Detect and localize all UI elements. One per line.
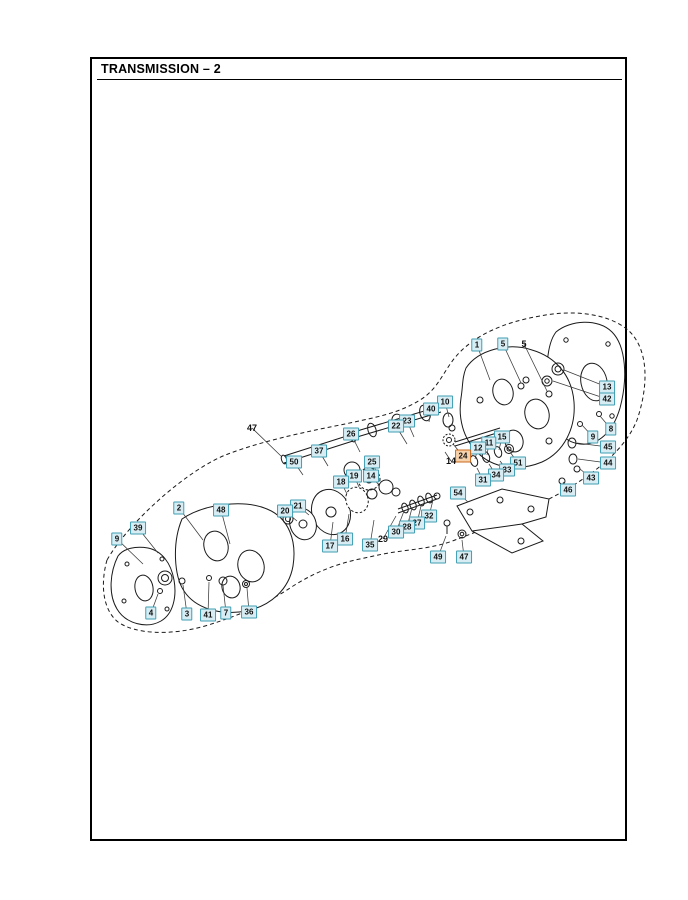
callout-49[interactable]: 49 [430,551,446,564]
callout-20[interactable]: 20 [277,505,293,518]
callout-16[interactable]: 16 [337,533,353,546]
callout-22[interactable]: 22 [388,420,404,433]
manual-page: TRANSMISSION – 2 [0,0,688,900]
callout-45[interactable]: 45 [600,441,616,454]
callout-50[interactable]: 50 [286,456,302,469]
callout-12[interactable]: 12 [470,442,486,455]
callout-42[interactable]: 42 [599,393,615,406]
callout-15[interactable]: 15 [494,431,510,444]
callout-54[interactable]: 54 [450,487,466,500]
callout-2[interactable]: 2 [173,502,184,515]
callout-26[interactable]: 26 [343,428,359,441]
callout-5: 5 [518,337,530,351]
callout-46[interactable]: 46 [560,484,576,497]
callout-14: 14 [442,454,459,468]
callout-44[interactable]: 44 [600,457,616,470]
callout-40[interactable]: 40 [423,403,439,416]
callout-9[interactable]: 9 [111,533,122,546]
callout-48[interactable]: 48 [213,504,229,517]
callout-17[interactable]: 17 [322,540,338,553]
callout-3[interactable]: 3 [181,608,192,621]
callout-43[interactable]: 43 [583,472,599,485]
callout-1[interactable]: 1 [471,339,482,352]
callout-7[interactable]: 7 [220,607,231,620]
callout-9[interactable]: 9 [587,431,598,444]
callout-14[interactable]: 14 [363,470,379,483]
callout-25[interactable]: 25 [364,456,380,469]
callout-10[interactable]: 10 [437,396,453,409]
callout-4[interactable]: 4 [145,607,156,620]
callout-36[interactable]: 36 [241,606,257,619]
callout-8[interactable]: 8 [605,423,616,436]
callout-5[interactable]: 5 [497,338,508,351]
callout-18[interactable]: 18 [333,476,349,489]
callout-39[interactable]: 39 [130,522,146,535]
callout-31[interactable]: 31 [475,474,491,487]
callout-47: 47 [243,421,260,435]
callout-35[interactable]: 35 [362,539,378,552]
callout-layer: 1551040232213428945444346151112241451333… [0,0,688,900]
callout-47[interactable]: 47 [456,551,472,564]
callout-41[interactable]: 41 [200,609,216,622]
callout-37[interactable]: 37 [311,445,327,458]
